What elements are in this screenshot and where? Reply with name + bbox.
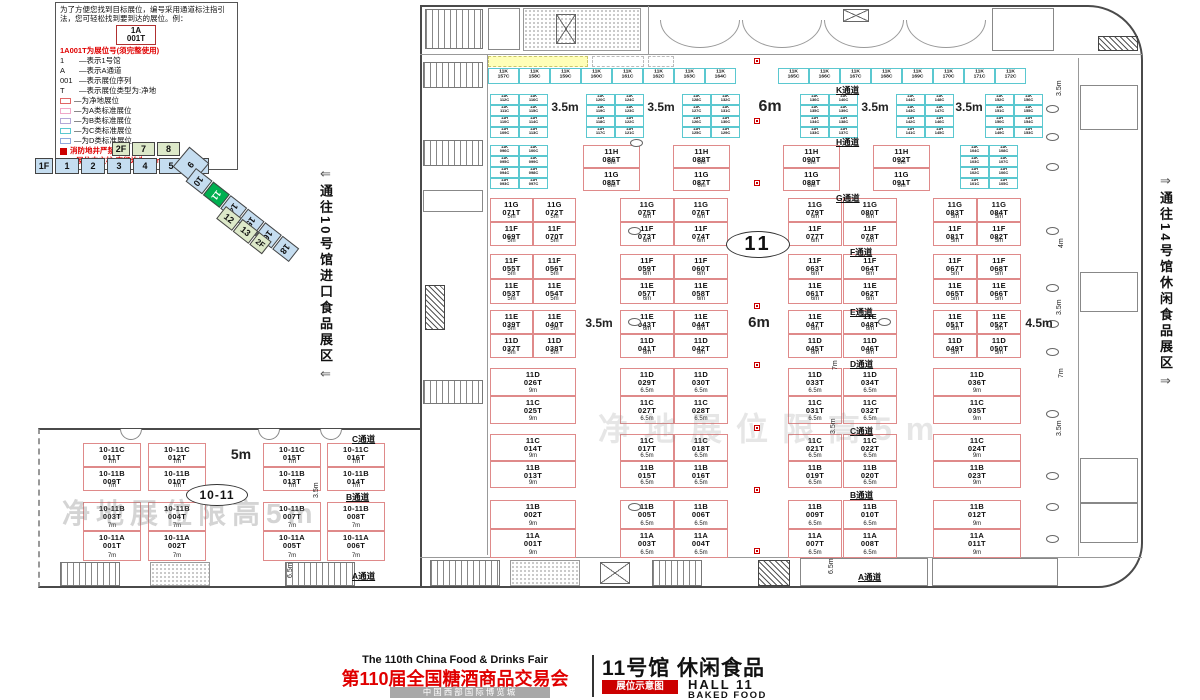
booth-11F-068T: 11F068T5m <box>977 254 1021 279</box>
booth-11E-066T: 11E066T5m <box>977 279 1021 304</box>
booth-10-11B-014T: 10-11B014T7m <box>327 467 385 491</box>
booth-11A-007T: 11A007T6.5m <box>788 529 842 558</box>
booth-10-11A-002T: 10-11A002T7m <box>148 531 206 561</box>
pillar <box>1046 163 1059 171</box>
dim-label-vertical: 3.5m <box>313 482 320 498</box>
pillar <box>628 503 641 511</box>
right-arrow-icon: ⇒ <box>1160 175 1171 187</box>
booth-11C-032T: 11C032T6.5m <box>843 396 897 424</box>
booth-11H-126C: 11H126C <box>682 116 711 127</box>
booth-11H-106C: 11H106C <box>989 167 1018 178</box>
legend-item: A—表示A通道 <box>60 67 233 76</box>
booth-class-swatch <box>60 128 71 134</box>
booth-11G-089T: 11G089T6m <box>783 168 840 191</box>
booth-11E-061T: 11E061T6m <box>788 279 842 304</box>
booth-11A-001T: 11A001T9m <box>490 529 576 558</box>
booth-11G-075T: 11G075T6m <box>620 198 674 222</box>
pillar <box>1046 410 1059 418</box>
dim-label-vertical: 6.5m <box>287 562 294 578</box>
booth-11K-170C: 11K170C <box>933 68 964 84</box>
booth-10-11A-001T: 10-11A001T7m <box>83 531 141 561</box>
booth-10-11B-009T: 10-11B009T7m <box>83 467 141 491</box>
right-direction-label: ⇒ 通往14号馆休闲食品展区 ⇒ <box>1156 175 1175 387</box>
pillar <box>1046 503 1059 511</box>
booth-11K-158C: 11K158C <box>519 68 550 84</box>
legend-example-code: 1A 001T <box>116 25 156 45</box>
aisle-label-D通道: D通道 <box>850 358 873 370</box>
booth-11D-030T: 11D030T6.5m <box>674 368 728 396</box>
booth-11D-034T: 11D034T6.5m <box>843 368 897 396</box>
booth-11K-136C: 11K136C <box>800 94 829 105</box>
booth-11K-127C: 11K127C <box>682 105 711 116</box>
booth-11K-156C: 11K156C <box>1014 94 1043 105</box>
dim-label-vertical: 3.5m <box>1056 299 1063 315</box>
pillar <box>1046 133 1059 141</box>
fire-well-icon <box>60 148 67 155</box>
aisle-label-A通道: A通道 <box>858 571 881 583</box>
booth-11H-125C: 11H125C <box>682 127 711 138</box>
booth-11H-101C: 11H101C <box>960 178 989 189</box>
booth-11C-027T: 11C027T6.5m <box>620 396 674 424</box>
booth-11D-046T: 11D046T6m <box>843 334 897 358</box>
booth-11H-114C: 11H114C <box>519 116 548 127</box>
booth-11D-042T: 11D042T6m <box>674 334 728 358</box>
booth-11C-017T: 11C017T6.5m <box>620 434 674 461</box>
booth-11K-155C: 11K155C <box>1014 105 1043 116</box>
booth-11H-090T: 11H090T6m <box>783 145 840 168</box>
minimap-hall-1: 1 <box>55 158 79 174</box>
booth-11E-065T: 11E065T5m <box>933 279 977 304</box>
booth-11H-138C: 11H138C <box>829 116 858 127</box>
booth-11G-083T: 11G083T5m <box>933 198 977 222</box>
booth-11D-029T: 11D029T6.5m <box>620 368 674 396</box>
aisle-label-C通道: C通道 <box>850 425 873 437</box>
booth-11E-047T: 11E047T6m <box>788 310 842 334</box>
booth-11H-141C: 11H141C <box>896 127 925 138</box>
booth-11G-087T: 11G087T6m <box>673 168 730 191</box>
aisle-label-G通道: G通道 <box>836 192 860 204</box>
booth-11G-085T: 11G085T6m <box>583 168 640 191</box>
booth-11K-144C: 11K144C <box>896 94 925 105</box>
dim-label-vertical: 7m <box>1058 368 1065 378</box>
booth-11H-122C: 11H122C <box>615 116 644 127</box>
booth-11K-115C: 11K115C <box>519 105 548 116</box>
fire-well-marker <box>754 548 760 554</box>
booth-11K-119C: 11K119C <box>586 105 615 116</box>
booth-11H-088T: 11H088T6m <box>673 145 730 168</box>
booth-11K-159C: 11K159C <box>550 68 581 84</box>
booth-11H-134C: 11H134C <box>800 116 829 127</box>
pillar <box>1046 105 1059 113</box>
booth-11F-078T: 11F078T6m <box>843 222 897 246</box>
legend-swatch-row: —为B类标准展位 <box>60 117 233 126</box>
booth-10-11C-011T: 10-11C011T7m <box>83 443 141 467</box>
booth-11C-022T: 11C022T6.5m <box>843 434 897 461</box>
fire-well-marker <box>754 487 760 493</box>
booth-11H-097C: 11H097C <box>519 178 548 189</box>
booth-11G-091T: 11G091T6m <box>873 168 930 191</box>
dim-label-vertical: 3.5m <box>830 418 837 434</box>
aisle-label-C通道: C通道 <box>352 433 375 445</box>
booth-10-11A-006T: 10-11A006T7m <box>327 531 385 561</box>
booth-11H-145C: 11H145C <box>925 127 954 138</box>
left-direction-label: ⇐ 通往10号馆进口食品展区 ⇐ <box>316 168 335 380</box>
booth-11K-095C: 11K095C <box>490 156 519 167</box>
booth-11F-056T: 11F056T5m <box>533 254 576 279</box>
booth-11K-171C: 11K171C <box>964 68 995 84</box>
booth-11K-163C: 11K163C <box>674 68 705 84</box>
pillar <box>1046 227 1059 235</box>
aisle-label-B通道: B通道 <box>850 489 873 501</box>
aisle-label-K通道: K通道 <box>836 84 859 96</box>
booth-11E-054T: 11E054T5m <box>533 279 576 304</box>
booth-11K-116C: 11K116C <box>519 94 548 105</box>
booth-11C-021T: 11C021T6.5m <box>788 434 842 461</box>
booth-11K-128C: 11K128C <box>682 94 711 105</box>
booth-11D-049T: 11D049T5m <box>933 334 977 358</box>
minimap-hall-8: 8 <box>157 142 180 156</box>
booth-11D-045T: 11D045T6m <box>788 334 842 358</box>
booth-11B-010T: 11B010T6.5m <box>843 500 897 529</box>
booth-11A-008T: 11A008T6.5m <box>843 529 897 558</box>
booth-11K-132C: 11K132C <box>711 94 740 105</box>
booth-11H-154C: 11H154C <box>1014 116 1043 127</box>
minimap-floor2: 2F78 <box>112 142 180 156</box>
booth-11H-092T: 11H092T6m <box>873 145 930 168</box>
booth-11G-084T: 11G084T5m <box>977 198 1021 222</box>
fire-well-marker <box>754 58 760 64</box>
booth-11K-172C: 11K172C <box>995 68 1026 84</box>
booth-11H-105C: 11H105C <box>989 178 1018 189</box>
booth-11C-024T: 11C024T9m <box>933 434 1021 461</box>
booth-11B-019T: 11B019T6.5m <box>788 461 842 488</box>
booth-11H-118C: 11H118C <box>586 116 615 127</box>
booth-11H-102C: 11H102C <box>960 167 989 178</box>
legend-swatch-row: —为净地展位 <box>60 97 233 106</box>
booth-11H-098C: 11H098C <box>519 167 548 178</box>
booth-11E-039T: 11E039T5m <box>490 310 533 334</box>
booth-11H-110C: 11H110C <box>490 116 519 127</box>
dim-label: 4.5m <box>1022 316 1056 330</box>
booth-11B-023T: 11B023T9m <box>933 461 1021 488</box>
booth-11C-018T: 11C018T6.5m <box>674 434 728 461</box>
legend-example-line2: 001T <box>117 35 155 43</box>
minimap-floor2-label: 2F <box>112 142 130 156</box>
booth-11F-074T: 11F074T6m <box>674 222 728 246</box>
booth-11B-016T: 11B016T6.5m <box>674 461 728 488</box>
floor-plan-page: 净地展位限高5m 净地展位限高5m 11K157C11K158C11K159C1… <box>0 0 1200 700</box>
booth-11K-168C: 11K168C <box>871 68 902 84</box>
booth-11K-099C: 11K099C <box>519 156 548 167</box>
dim-label-vertical: 3.5m <box>1056 420 1063 436</box>
booth-11C-025T: 11C025T9m <box>490 396 576 424</box>
fire-well-marker <box>754 118 760 124</box>
legend-item: 1—表示1号馆 <box>60 57 233 66</box>
booth-11K-120C: 11K120C <box>586 94 615 105</box>
dim-label-vertical: 6.5m <box>828 558 835 574</box>
booth-11H-130C: 11H130C <box>711 116 740 127</box>
dim-label-vertical: 4m <box>1058 238 1065 248</box>
booth-11H-093C: 11H093C <box>490 178 519 189</box>
left-arrow-icon: ⇐ <box>320 368 331 380</box>
minimap-hall-2: 2 <box>81 158 105 174</box>
dim-label: 3.5m <box>952 100 986 114</box>
booth-11D-050T: 11D050T5m <box>977 334 1021 358</box>
booth-11K-165C: 11K165C <box>778 68 809 84</box>
dim-label: 6m <box>753 98 787 116</box>
booth-11E-051T: 11E051T5m <box>933 310 977 334</box>
booth-11E-057T: 11E057T6m <box>620 279 674 304</box>
legend-swatches: —为净地展位—为A类标准展位—为B类标准展位—为C类标准展位—为D类标准展位 <box>60 97 233 146</box>
legend-items: 1—表示1号馆A—表示A通道001—表示展位序列T—表示展位类型为:净地 <box>60 57 233 96</box>
hall-number-oval: 11 <box>726 231 790 258</box>
booth-11F-070T: 11F070T5m <box>533 222 576 246</box>
aisle-label-A通道: A通道 <box>352 570 375 582</box>
booth-11E-062T: 11E062T6m <box>843 279 897 304</box>
booth-11K-157C: 11K157C <box>488 68 519 84</box>
booth-11B-006T: 11B006T6.5m <box>674 500 728 529</box>
minimap-hall-4: 4 <box>133 158 157 174</box>
minimap-hall-7: 7 <box>132 142 155 156</box>
booth-11H-153C: 11H153C <box>1014 127 1043 138</box>
booth-10-11C-015T: 10-11C015T7m <box>263 443 321 467</box>
aisle-label-F通道: F通道 <box>850 246 872 258</box>
booth-11K-143C: 11K143C <box>896 105 925 116</box>
dim-label: 3.5m <box>858 100 892 114</box>
booth-11A-003T: 11A003T6.5m <box>620 529 674 558</box>
booth-11F-082T: 11F082T5m <box>977 222 1021 246</box>
pillar <box>630 139 643 147</box>
booth-11H-146C: 11H146C <box>925 116 954 127</box>
booth-10-11C-016T: 10-11C016T7m <box>327 443 385 467</box>
booth-11B-009T: 11B009T6.5m <box>788 500 842 529</box>
dim-label: 6m <box>742 314 776 331</box>
fire-well-marker <box>754 303 760 309</box>
left-arrow-icon: ⇐ <box>320 168 331 180</box>
booth-11G-071T: 11G071T5m <box>490 198 533 222</box>
dim-label: 3.5m <box>644 100 678 114</box>
booth-11K-103C: 11K103C <box>960 156 989 167</box>
booth-11F-081T: 11F081T5m <box>933 222 977 246</box>
aisle-label-B通道: B通道 <box>346 491 369 503</box>
aisle-label-H通道: H通道 <box>836 136 859 148</box>
pillar <box>628 227 641 235</box>
aisle-label-E通道: E通道 <box>850 306 873 318</box>
booth-11K-131C: 11K131C <box>711 105 740 116</box>
booth-10-11C-012T: 10-11C012T7m <box>148 443 206 467</box>
booth-11K-100C: 11K100C <box>519 145 548 156</box>
booth-class-swatch <box>60 118 71 124</box>
booth-11E-058T: 11E058T6m <box>674 279 728 304</box>
pillar <box>628 318 641 326</box>
booth-11E-052T: 11E052T5m <box>977 310 1021 334</box>
booth-11B-015T: 11B015T6.5m <box>620 461 674 488</box>
booth-11K-135C: 11K135C <box>800 105 829 116</box>
booth-11A-011T: 11A011T9m <box>933 529 1021 558</box>
booth-11E-044T: 11E044T6m <box>674 310 728 334</box>
booth-11F-077T: 11F077T6m <box>788 222 842 246</box>
booth-11K-161C: 11K161C <box>612 68 643 84</box>
booth-11K-166C: 11K166C <box>809 68 840 84</box>
right-direction-text: 通往14号馆休闲食品展区 <box>1156 191 1175 371</box>
booth-11F-055T: 11F055T5m <box>490 254 533 279</box>
booth-11K-148C: 11K148C <box>925 94 954 105</box>
booth-11H-109C: 11H109C <box>490 127 519 138</box>
legend-swatch-row: —为C类标准展位 <box>60 127 233 136</box>
booth-11K-169C: 11K169C <box>902 68 933 84</box>
booth-11K-104C: 11K104C <box>960 145 989 156</box>
booth-11H-117C: 11H117C <box>586 127 615 138</box>
booth-10-11B-003T: 10-11B003T7m <box>83 502 141 531</box>
hall-subtitle: BAKED FOOD <box>688 690 767 700</box>
booth-11B-012T: 11B012T9m <box>933 500 1021 529</box>
booth-11K-139C: 11K139C <box>829 105 858 116</box>
booth-11H-086T: 11H086T6m <box>583 145 640 168</box>
booth-11D-041T: 11D041T6m <box>620 334 674 358</box>
annex-number-oval: 10-11 <box>186 484 248 506</box>
booth-11E-053T: 11E053T5m <box>490 279 533 304</box>
booth-11K-124C: 11K124C <box>615 94 644 105</box>
booth-11F-069T: 11F069T5m <box>490 222 533 246</box>
booth-11H-142C: 11H142C <box>896 116 925 127</box>
booth-11K-111C: 11K111C <box>490 105 519 116</box>
booth-11G-072T: 11G072T5m <box>533 198 576 222</box>
right-arrow-icon: ⇒ <box>1160 375 1171 387</box>
venue-bar: 中国西部国际博览城 <box>390 687 550 698</box>
booth-class-swatch <box>60 138 71 144</box>
pillar <box>1046 348 1059 356</box>
footer-divider <box>592 655 594 697</box>
booth-11G-076T: 11G076T6m <box>674 198 728 222</box>
booth-11H-150C: 11H150C <box>985 116 1014 127</box>
dim-label: 3.5m <box>548 100 582 114</box>
booth-11H-094C: 11H094C <box>490 167 519 178</box>
left-direction-text: 通往10号馆进口食品展区 <box>316 184 335 364</box>
legend-intro: 为了方便您找到目标展位，编号采用通道标注指引法，您可轻松找到要到达的展位。例： <box>60 6 233 23</box>
booth-11G-079T: 11G079T6m <box>788 198 842 222</box>
booth-11C-028T: 11C028T6.5m <box>674 396 728 424</box>
minimap-floor1-label: 1F <box>35 158 53 174</box>
booth-11D-038T: 11D038T5m <box>533 334 576 358</box>
booth-class-swatch <box>60 108 71 114</box>
booth-11K-108C: 11K108C <box>989 145 1018 156</box>
booth-11B-013T: 11B013T9m <box>490 461 576 488</box>
booth-11F-059T: 11F059T6m <box>620 254 674 279</box>
booth-11H-121C: 11H121C <box>615 127 644 138</box>
booth-11K-096C: 11K096C <box>490 145 519 156</box>
booth-11K-164C: 11K164C <box>705 68 736 84</box>
booth-11D-036T: 11D036T9m <box>933 368 1021 396</box>
legend-item: 001—表示展位序列 <box>60 77 233 86</box>
booth-11F-063T: 11F063T6m <box>788 254 842 279</box>
legend-item: T—表示展位类型为:净地 <box>60 87 233 96</box>
booth-11B-002T: 11B002T9m <box>490 500 576 529</box>
booth-11K-112C: 11K112C <box>490 94 519 105</box>
booth-11F-073T: 11F073T6m <box>620 222 674 246</box>
booth-10-11A-005T: 10-11A005T7m <box>263 531 321 561</box>
dim-label-vertical: 7m <box>832 360 839 370</box>
booth-11K-107C: 11K107C <box>989 156 1018 167</box>
pillar <box>878 318 891 326</box>
booth-11D-033T: 11D033T6.5m <box>788 368 842 396</box>
booth-11K-147C: 11K147C <box>925 105 954 116</box>
booth-11K-160C: 11K160C <box>581 68 612 84</box>
footer: The 110th China Food & Drinks Fair 第110届… <box>0 648 1200 700</box>
minimap-hall-3: 3 <box>107 158 131 174</box>
booth-10-11B-004T: 10-11B004T7m <box>148 502 206 531</box>
booth-11H-133C: 11H133C <box>800 127 829 138</box>
dim-label-vertical: 3.5m <box>1056 80 1063 96</box>
legend-swatch-row: —为A类标准展位 <box>60 107 233 116</box>
pillar <box>1046 472 1059 480</box>
booth-11H-149C: 11H149C <box>985 127 1014 138</box>
dim-label: 3.5m <box>582 316 616 330</box>
booth-11C-035T: 11C035T9m <box>933 396 1021 424</box>
booth-10-11B-007T: 10-11B007T7m <box>263 502 321 531</box>
booth-11K-167C: 11K167C <box>840 68 871 84</box>
booth-11H-113C: 11H113C <box>519 127 548 138</box>
booth-11K-151C: 11K151C <box>985 105 1014 116</box>
booth-11D-037T: 11D037T5m <box>490 334 533 358</box>
booth-11H-129C: 11H129C <box>711 127 740 138</box>
pillar <box>1046 535 1059 543</box>
fire-well-marker <box>754 425 760 431</box>
booth-11C-014T: 11C014T9m <box>490 434 576 461</box>
booth-11B-020T: 11B020T6.5m <box>843 461 897 488</box>
booth-11F-067T: 11F067T5m <box>933 254 977 279</box>
legend-title-note: 1A001T为展位号(须完整使用) <box>60 47 233 56</box>
dim-label: 5m <box>224 446 258 462</box>
booth-11K-162C: 11K162C <box>643 68 674 84</box>
booth-11F-060T: 11F060T6m <box>674 254 728 279</box>
booth-11K-152C: 11K152C <box>985 94 1014 105</box>
booth-11K-123C: 11K123C <box>615 105 644 116</box>
booth-11A-004T: 11A004T6.5m <box>674 529 728 558</box>
fire-well-marker <box>754 362 760 368</box>
pillar <box>1046 284 1059 292</box>
booth-11D-026T: 11D026T9m <box>490 368 576 396</box>
booth-class-swatch <box>60 98 71 104</box>
booth-11E-040T: 11E040T5m <box>533 310 576 334</box>
plan-badge: 展位示意图 <box>602 680 678 694</box>
fire-well-marker <box>754 180 760 186</box>
booth-10-11B-008T: 10-11B008T7m <box>327 502 385 531</box>
